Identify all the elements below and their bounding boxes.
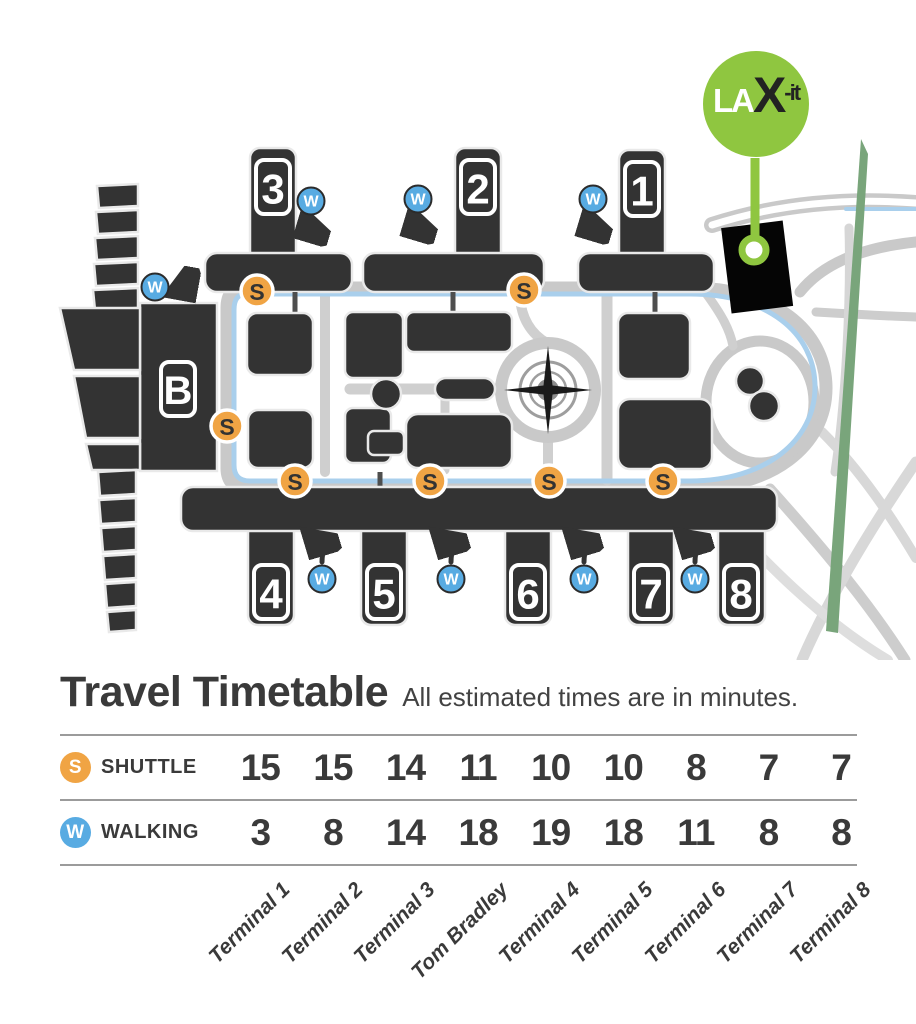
walking-icon: W (298, 188, 325, 215)
terminal-column-cell: Terminal 8 (805, 866, 878, 1022)
shuttle-time-cell: 14 (369, 747, 442, 789)
walk-arrow (322, 542, 335, 562)
walk-arrow (311, 217, 324, 237)
walking-legend-icon: W (60, 817, 91, 848)
svg-text:W: W (314, 572, 330, 589)
terminal-1-badge: 1 (630, 168, 653, 215)
lax-map-svg: B 3 2 1 (0, 0, 916, 660)
svg-text:8: 8 (729, 571, 752, 618)
shuttle-time-cell: 11 (442, 747, 515, 789)
svg-text:B: B (164, 369, 193, 413)
terminal-2-badge: 2 (466, 166, 489, 213)
shuttle-stop-icon: S (647, 465, 679, 497)
timetable-row-shuttle: SSHUTTLE151514111010877 (60, 736, 880, 799)
lax-terminal-map: B 3 2 1 (0, 0, 916, 660)
tom-bradley-west-wedge-2 (74, 376, 140, 438)
timetable-title: Travel Timetable (60, 668, 388, 717)
svg-text:W: W (576, 572, 592, 589)
svg-text:W: W (303, 194, 319, 211)
walking-time-cell: 8 (805, 812, 878, 854)
road-ramp-b (802, 462, 916, 660)
walking-time-cell: 18 (442, 812, 515, 854)
road-right-spur (816, 312, 916, 317)
svg-text:S: S (219, 414, 234, 440)
timetable-row-walking: WWALKING38141819181188 (60, 801, 880, 864)
svg-text:S: S (422, 469, 437, 495)
laxit-pin-ring (742, 238, 766, 262)
svg-text:S: S (516, 278, 531, 304)
walk-arrow (173, 272, 191, 287)
walking-time-cell: 18 (587, 812, 660, 854)
walk-arrow (418, 215, 431, 235)
walking-icon: W (580, 186, 607, 213)
walk-arrow (451, 542, 464, 562)
shuttle-stop-icon: S (508, 274, 540, 306)
shuttle-time-cell: 15 (224, 747, 297, 789)
svg-text:S: S (287, 469, 302, 495)
shuttle-time-cell: 15 (297, 747, 370, 789)
shuttle-row-label: SSHUTTLE (60, 752, 224, 783)
svg-text:S: S (655, 469, 670, 495)
svg-text:W: W (585, 192, 601, 209)
roundabout-building (371, 379, 401, 409)
terminal-1-bar (578, 253, 714, 292)
south-connector-bar (181, 487, 777, 531)
tom-bradley-north-gates (93, 184, 138, 310)
shuttle-stop-icon: S (279, 465, 311, 497)
tom-bradley-west-wedge-1 (60, 308, 140, 370)
east-blob-building-b (749, 391, 779, 421)
shuttle-time-cell: 10 (587, 747, 660, 789)
shuttle-time-cell: 8 (660, 747, 733, 789)
laxit-logo-x: X (753, 67, 786, 123)
shuttle-stop-icon: S (241, 275, 273, 307)
walking-icon: W (682, 566, 709, 593)
svg-text:W: W (410, 192, 426, 209)
svg-text:S: S (541, 469, 556, 495)
shuttle-stop-icon: S (414, 465, 446, 497)
shuttle-time-cell: 7 (805, 747, 878, 789)
laxit-infographic: B 3 2 1 (0, 0, 916, 1024)
timetable-header: Travel Timetable All estimated times are… (60, 668, 880, 720)
terminal-b-badge: B (161, 362, 195, 416)
laxit-logo: LAX-it (703, 51, 809, 157)
walking-label-text: WALKING (101, 821, 199, 844)
terminal-column-labels: Terminal 1Terminal 2Terminal 3Tom Bradle… (60, 866, 880, 1022)
shuttle-label-text: SHUTTLE (101, 756, 197, 779)
walking-time-cell: 8 (732, 812, 805, 854)
shuttle-stop-icon: S (533, 465, 565, 497)
walking-icon: W (309, 566, 336, 593)
terminal-3-bar (205, 253, 352, 292)
walking-row-label: WWALKING (60, 817, 224, 848)
walking-time-cell: 14 (369, 812, 442, 854)
walking-icon: W (405, 186, 432, 213)
svg-text:W: W (147, 280, 163, 297)
terminal-1: 1 (578, 150, 714, 292)
column-label-spacer (60, 866, 224, 1022)
tom-bradley-west-wedge-3 (86, 444, 140, 470)
theme-blade-horizontal (504, 385, 592, 395)
pill-building (435, 378, 495, 400)
svg-text:W: W (443, 572, 459, 589)
svg-text:W: W (687, 572, 703, 589)
shuttle-time-cell: 10 (514, 747, 587, 789)
terminal-3-badge: 3 (261, 166, 284, 213)
terminal-2: 2 (363, 148, 544, 292)
tom-bradley-terminal: B (60, 184, 217, 632)
road-oval-connector (705, 292, 733, 346)
svg-text:5: 5 (372, 571, 395, 618)
shuttle-stop-icon: S (211, 410, 243, 442)
svg-text:7: 7 (639, 571, 662, 618)
walking-time-cell: 19 (514, 812, 587, 854)
walk-arrow (584, 542, 597, 562)
walking-icon: W (142, 274, 169, 301)
walking-icon: W (571, 566, 598, 593)
walk-arrow (695, 542, 708, 562)
tom-bradley-south-gates (98, 470, 136, 632)
shuttle-time-cell: 7 (732, 747, 805, 789)
timetable-subtitle: All estimated times are in minutes. (402, 682, 798, 713)
svg-text:6: 6 (516, 571, 539, 618)
walking-time-cell: 11 (660, 812, 733, 854)
walking-icon: W (438, 566, 465, 593)
svg-text:4: 4 (259, 571, 283, 618)
walking-time-cell: 3 (224, 812, 297, 854)
svg-text:S: S (249, 279, 264, 305)
travel-timetable: Travel Timetable All estimated times are… (60, 668, 880, 1022)
laxit-logo-la: LA (713, 82, 754, 119)
walk-arrow (593, 215, 606, 235)
terminal-3: 3 (205, 148, 352, 292)
walking-time-cell: 8 (297, 812, 370, 854)
shuttle-legend-icon: S (60, 752, 91, 783)
